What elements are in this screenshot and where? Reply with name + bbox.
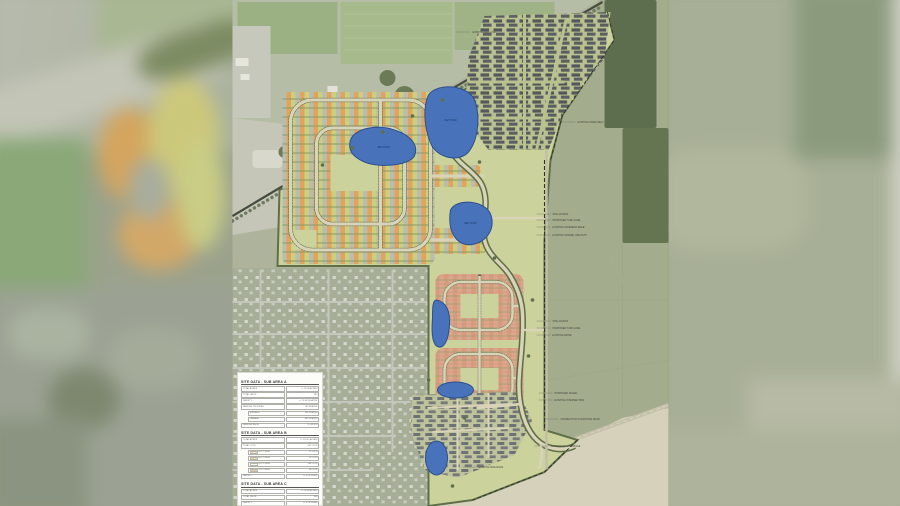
table-row: TOTAL ACRES+/- 30.68 ACRES [241,489,319,494]
row-label: PARKING PROVIDED [241,404,285,409]
row-label: TOTAL LOTS [241,443,285,448]
table-row: 60 FT WIDE74 LOTS [241,456,319,461]
lot-color-swatch [250,451,258,454]
map-annotation: PROPOSED SIGNAL [555,392,579,395]
pond-label: WET POND [464,223,477,225]
map-annotation: EXISTING RAIL LINE [473,31,496,34]
row-value: +/- 12.63 DU/ACRE [286,398,319,403]
table-row: TOTAL UNITS300 [241,495,319,500]
row-label: 70 FT WIDE [248,468,285,473]
row-value: 2.0 SP/DU [286,423,319,428]
site-data-table: SITE DATA - SUB AREA ATOTAL ACRES+/- 30.… [241,380,319,429]
row-label: DENSITY [241,398,285,403]
row-value: +/- 30.68 ACRES [286,489,319,494]
lot-color-swatch [250,469,258,472]
lot-color-swatch [250,463,258,466]
row-label: DENSITY [241,501,285,506]
row-value: 307 LOTS [286,443,319,448]
map-annotation: PROPOSED TURN LANE [553,327,581,330]
row-label: SURFACE [248,411,285,416]
row-value: 760 SPACES [286,404,319,409]
woods-northeast [605,0,657,128]
row-label: TOTAL ACRES [241,386,285,391]
map-annotation: EXISTING INTERSECTION [555,399,585,402]
row-value: 71 LOTS [286,450,319,455]
row-value: 58 LOTS [286,468,319,473]
map-annotation: PROPOSED TURN LANE [553,219,581,222]
row-value: +/- 120.41 ACRES [286,437,319,442]
blurred-right-panel [669,0,900,506]
table-row: DENSITY+/- 2.55 DU/AC [241,474,319,479]
table-row: DENSITY+/- 12.63 DU/ACRE [241,398,319,403]
row-value: 74 LOTS [286,456,319,461]
blurred-left-panel [0,0,233,506]
table-row: 50 FT WIDE71 LOTS [241,450,319,455]
map-annotation: SITE ACCESS [553,213,569,216]
row-label: DENSITY [241,474,285,479]
table-row: TOTAL UNITS380 [241,392,319,397]
table-row: PARKING PROVIDED760 SPACES [241,404,319,409]
table-row: TOTAL ACRES+/- 30.08 ACRES [241,386,319,391]
map-annotation: SITE ACCESS [553,320,569,323]
woods-east [623,128,669,243]
table-row: 65 FT WIDE104 LOTS [241,462,319,467]
row-label: 60 FT WIDE [248,456,285,461]
map-annotation: EXISTING BUILDINGS [479,466,504,469]
table-row: DENSITY+/- 9.78 DU/AC [241,501,319,506]
site-data-panel: SITE DATA - SUB AREA ATOTAL ACRES+/- 30.… [237,372,323,506]
row-value: +/- 9.78 DU/AC [286,501,319,506]
map-annotation: EXISTING DRIVE [553,334,573,337]
row-label: TOTAL ACRES [241,489,285,494]
table-title: SITE DATA - SUB AREA A [241,380,319,386]
map-annotation: EXISTING FARM FIELD [578,121,604,124]
row-value: +/- 30.08 ACRES [286,386,319,391]
row-value: 300 [286,495,319,500]
pond-5 [438,382,474,398]
row-value: +/- 2.55 DU/AC [286,474,319,479]
pond-6 [426,441,448,475]
row-value: 362 SPACES [286,417,319,422]
map-annotation: EXISTING PAVEMENT EDGE [553,226,585,229]
table-row: PARKING RATIO2.0 SP/DU [241,423,319,428]
row-label: GARAGE [248,417,285,422]
table-row: SURFACE398 SPACES [241,411,319,416]
lot-color-swatch [250,457,258,460]
map-annotation: EXISTING SHARED USE PATH [553,234,587,237]
site-data-table: SITE DATA - SUB AREA BTOTAL ACRES+/- 120… [241,431,319,480]
pond-1 [425,87,478,158]
row-label: TOTAL ACRES [241,437,285,442]
row-label: 50 FT WIDE [248,450,285,455]
site-data-table: SITE DATA - SUB AREA CTOTAL ACRES+/- 30.… [241,482,319,506]
pond-label: WET POND [377,147,390,149]
row-value: 104 LOTS [286,462,319,467]
table-title: SITE DATA - SUB AREA C [241,482,319,488]
table-row: 70 FT WIDE58 LOTS [241,468,319,473]
map-annotation: COMMERCIAL FRONTAGE [551,445,581,448]
video-frame: WET POND WET POND WET POND EXISTING RAIL… [0,0,900,506]
table-row: GARAGE362 SPACES [241,417,319,422]
table-row: TOTAL ACRES+/- 120.41 ACRES [241,437,319,442]
table-title: SITE DATA - SUB AREA B [241,431,319,437]
pond-label: WET POND [444,120,457,122]
table-row: TOTAL LOTS307 LOTS [241,443,319,448]
row-value: 380 [286,392,319,397]
row-label: 65 FT WIDE [248,462,285,467]
map-annotation: CONNECTION TO EXISTING ROAD [561,418,601,421]
row-label: TOTAL UNITS [241,392,285,397]
row-label: TOTAL UNITS [241,495,285,500]
row-value: 398 SPACES [286,411,319,416]
row-label: PARKING RATIO [241,423,285,428]
